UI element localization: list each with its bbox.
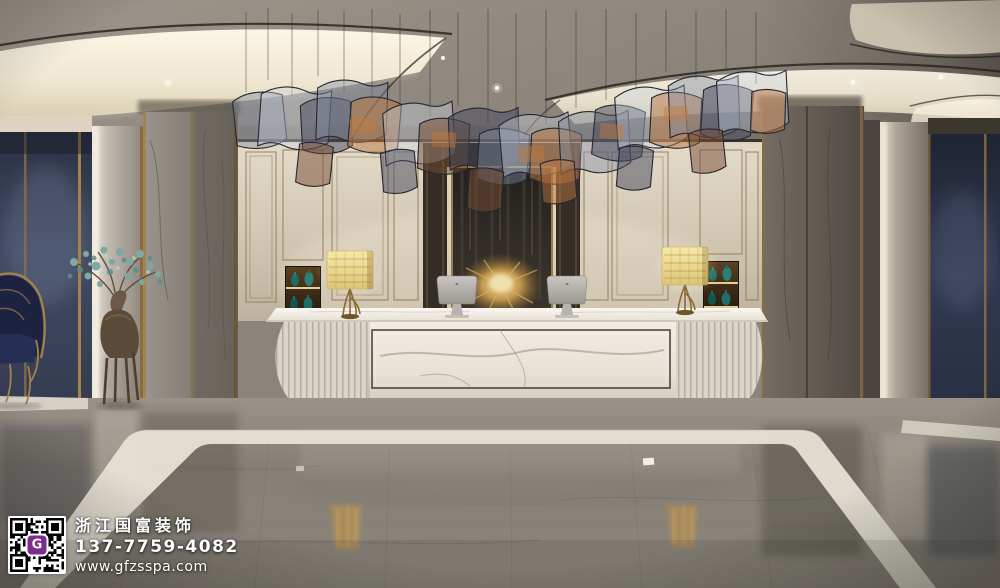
watermark-text: 浙江国富装饰 137-7759-4082 www.gfzsspa.com — [75, 516, 239, 576]
lobby-render — [0, 0, 1000, 588]
lobby-photo: G 浙江国富装饰 137-7759-4082 www.gfzsspa.com — [0, 0, 1000, 588]
phone-number: 137-7759-4082 — [75, 536, 239, 558]
qr-code: G — [8, 516, 66, 574]
vignette — [0, 0, 1000, 588]
website-url: www.gfzsspa.com — [75, 558, 239, 576]
company-name: 浙江国富装饰 — [75, 516, 239, 536]
watermark: G 浙江国富装饰 137-7759-4082 www.gfzsspa.com — [8, 516, 239, 576]
qr-logo: G — [28, 536, 47, 555]
